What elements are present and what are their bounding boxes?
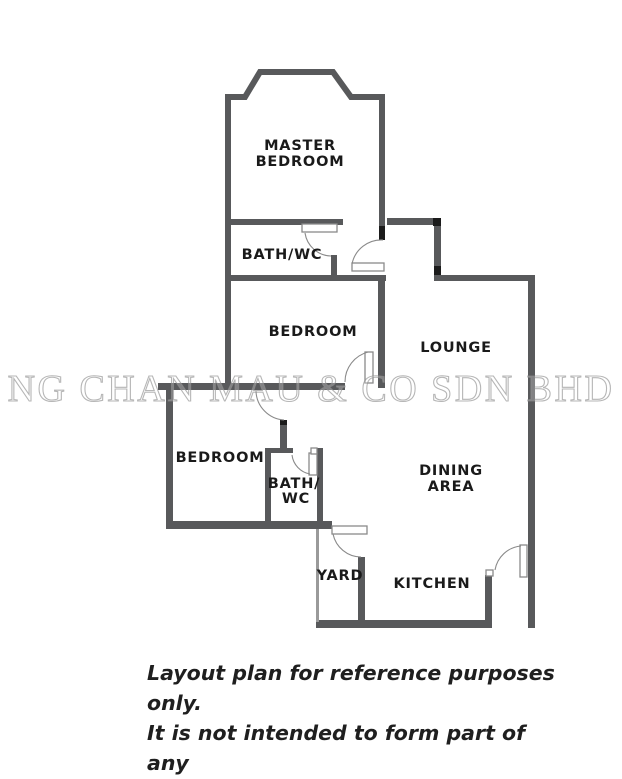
door-arc-kitchen (495, 546, 521, 570)
label-lounge: LOUNGE (420, 340, 492, 356)
wall-segment (331, 255, 337, 277)
company-watermark: NG CHAN MAU & CO SDN BHD (8, 368, 615, 410)
wall-segment (387, 218, 441, 225)
door-leaf-yard (332, 526, 367, 534)
door-leaf-bath-lower (309, 453, 317, 475)
door-leaf-corridor (352, 263, 384, 271)
wall-bay-window (228, 72, 384, 97)
wall-segment (358, 557, 365, 622)
floor-plan-page: MASTER BEDROOM BATH/WC BEDROOM LOUNGE BE… (0, 0, 622, 779)
door-jamb-marker (433, 218, 441, 226)
wall-segment (166, 521, 332, 529)
label-bath-wc-lower: WC (282, 491, 310, 507)
label-dining-area: AREA (428, 479, 475, 495)
disclaimer-line: Layout plan for reference purposes only. (147, 658, 567, 718)
wall-segment (485, 575, 492, 623)
wall-segment (434, 275, 535, 281)
label-master-bedroom: MASTER (264, 138, 336, 154)
wall-segment (225, 275, 386, 281)
label-yard: YARD (316, 568, 364, 584)
label-master-bedroom: BEDROOM (256, 154, 345, 170)
label-bedroom-middle: BEDROOM (269, 324, 358, 340)
door-arc-bath-lower (292, 455, 310, 474)
door-leaf-kitchen (520, 545, 527, 577)
disclaimer-text: Layout plan for reference purposes only.… (147, 658, 567, 779)
label-kitchen: KITCHEN (394, 576, 471, 592)
door-jamb-white (486, 570, 493, 576)
door-jamb-marker (280, 420, 287, 425)
disclaimer-line: It is not intended to form part of any (147, 718, 567, 778)
wall-segment (265, 448, 293, 453)
door-leaf-bath-upper (302, 224, 337, 232)
wall-segment (379, 94, 385, 240)
door-jamb-marker (434, 266, 441, 275)
wall-segment (528, 275, 535, 628)
wall-segment (225, 94, 231, 385)
door-arc-corridor (352, 240, 383, 264)
door-jamb-white (311, 448, 317, 454)
door-jamb-marker (379, 226, 385, 240)
wall-segment (316, 620, 492, 628)
label-bath-wc-upper: BATH/WC (242, 247, 323, 263)
door-arc-yard (333, 534, 361, 557)
label-bedroom-left: BEDROOM (176, 450, 265, 466)
label-bath-wc-lower: BATH/ (268, 476, 320, 492)
label-dining-area: DINING (419, 463, 483, 479)
